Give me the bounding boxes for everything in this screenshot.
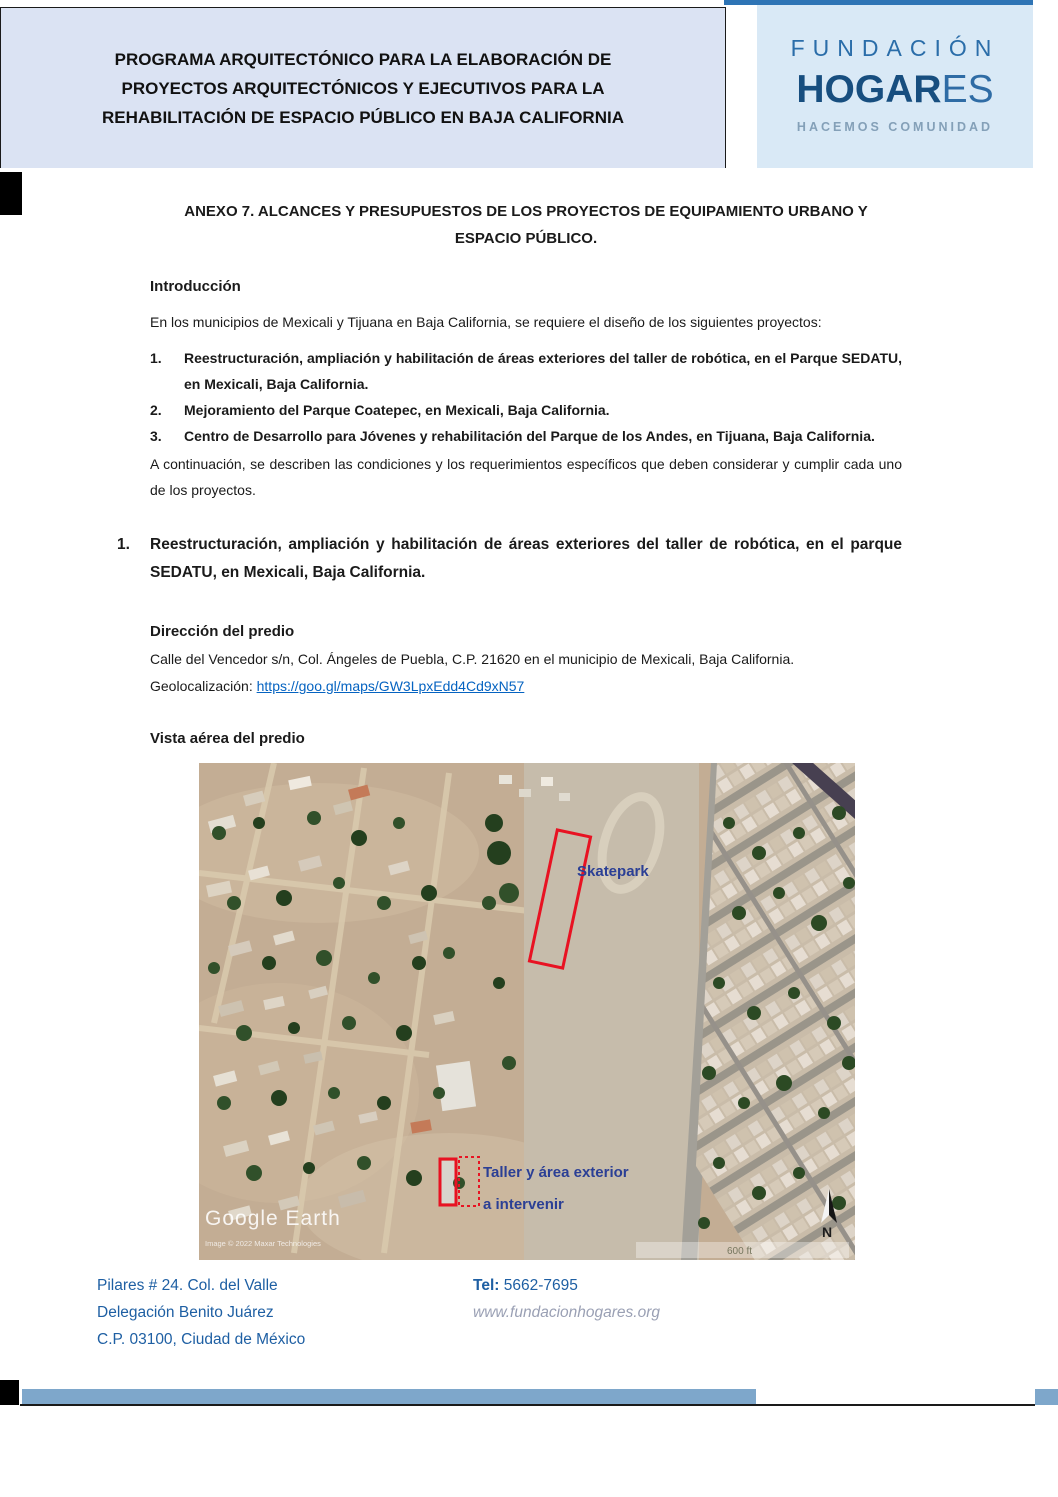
header-title-line: PROYECTOS ARQUITECTÓNICOS Y EJECUTIVOS P… (1, 74, 725, 103)
list-item: 3. Centro de Desarrollo para Jóvenes y r… (150, 423, 902, 449)
logo-hogar-bold: HOGAR (796, 68, 941, 111)
list-item: 2. Mejoramiento del Parque Coatepec, en … (150, 397, 902, 423)
list-item-text: Mejoramiento del Parque Coatepec, en Mex… (184, 397, 902, 423)
document-page: PROGRAMA ARQUITECTÓNICO PARA LA ELABORAC… (0, 0, 1058, 1497)
logo-hogares-text: HOGARES (757, 68, 1033, 112)
vista-aerea-heading: Vista aérea del predio (150, 730, 902, 747)
list-item-text: Reestructuración, ampliación y habilitac… (184, 345, 902, 397)
bottom-blue-square (1035, 1389, 1058, 1405)
scale-label: 600 ft (727, 1246, 752, 1257)
document-content: ANEXO 7. ALCANCES Y PRESUPUESTOS DE LOS … (150, 198, 902, 1260)
header-title-line: REHABILITACIÓN DE ESPACIO PÚBLICO EN BAJ… (1, 103, 725, 132)
intro-paragraph: En los municipios de Mexicali y Tijuana … (150, 310, 902, 335)
taller-label-line1: Taller y área exterior (483, 1164, 629, 1181)
satellite-map-image: Skatepark Taller y área exterior a inter… (199, 763, 855, 1260)
logo-es-light: ES (942, 68, 994, 111)
intro-heading: Introducción (150, 278, 902, 295)
header-title-line: PROGRAMA ARQUITECTÓNICO PARA LA ELABORAC… (1, 45, 725, 74)
bottom-black-square (0, 1380, 19, 1405)
list-item-text: Centro de Desarrollo para Jóvenes y reha… (184, 423, 902, 449)
geolocation-link[interactable]: https://goo.gl/maps/GW3LpxEdd4Cd9xN57 (257, 678, 525, 694)
header-title-box: PROGRAMA ARQUITECTÓNICO PARA LA ELABORAC… (0, 7, 726, 168)
continuation-paragraph: A continuación, se describen las condici… (150, 451, 902, 503)
footer-tel-label: Tel: (473, 1277, 499, 1294)
footer-tel-number: 5662-7695 (499, 1277, 577, 1294)
section-1-title: Reestructuración, ampliación y habilitac… (150, 531, 902, 587)
logo-tagline: HACEMOS COMUNIDAD (757, 120, 1033, 134)
section-1-heading: 1. Reestructuración, ampliación y habili… (117, 531, 902, 587)
north-label: N (822, 1224, 832, 1240)
park-lot (524, 763, 699, 1260)
address-text: Calle del Vencedor s/n, Col. Ángeles de … (150, 646, 902, 673)
footer-telephone: Tel: 5662-7695 (473, 1272, 660, 1299)
map-terrain: Skatepark Taller y área exterior a inter… (199, 763, 855, 1260)
aerial-map-figure: Skatepark Taller y área exterior a inter… (199, 763, 855, 1260)
fundacion-hogares-logo: FUNDACIÓN HOGARES HACEMOS COMUNIDAD (757, 5, 1033, 168)
list-item-number: 3. (150, 423, 184, 449)
bottom-rule-line (20, 1404, 1035, 1406)
footer-address-line: Delegación Benito Juárez (97, 1299, 305, 1326)
anexo-title: ANEXO 7. ALCANCES Y PRESUPUESTOS DE LOS … (171, 198, 881, 252)
direccion-heading: Dirección del predio (150, 623, 902, 640)
list-item-number: 1. (150, 345, 184, 397)
project-list: 1. Reestructuración, ampliación y habili… (150, 345, 902, 449)
map-attribution: Image © 2022 Maxar Technologies (205, 1239, 321, 1248)
geolocation-label: Geolocalización: (150, 678, 257, 694)
footer-address: Pilares # 24. Col. del Valle Delegación … (97, 1272, 305, 1353)
list-item: 1. Reestructuración, ampliación y habili… (150, 345, 902, 397)
skatepark-label: Skatepark (577, 863, 649, 880)
footer-address-line: Pilares # 24. Col. del Valle (97, 1272, 305, 1299)
left-edge-black-tab (0, 172, 22, 215)
section-1-number: 1. (117, 531, 150, 587)
footer-address-line: C.P. 03100, Ciudad de México (97, 1326, 305, 1353)
taller-label-line2: a intervenir (483, 1196, 564, 1213)
footer-website: www.fundacionhogares.org (473, 1299, 660, 1326)
logo-fundacion-text: FUNDACIÓN (757, 35, 1033, 62)
bottom-blue-bar (22, 1389, 756, 1405)
list-item-number: 2. (150, 397, 184, 423)
footer-contact: Tel: 5662-7695 www.fundacionhogares.org (473, 1272, 660, 1326)
google-earth-watermark: Google Earth (205, 1207, 341, 1230)
geolocation-line: Geolocalización: https://goo.gl/maps/GW3… (150, 673, 902, 700)
